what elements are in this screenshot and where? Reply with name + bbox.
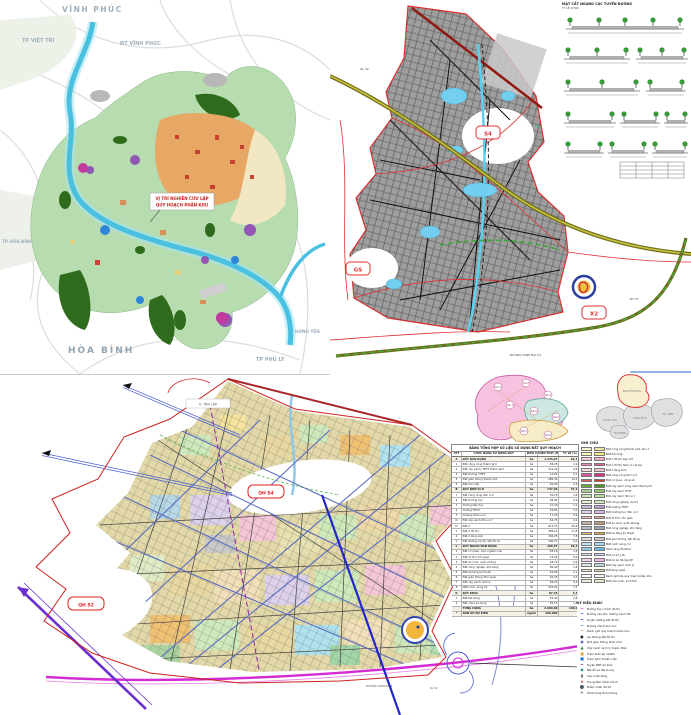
section-row-5c (652, 141, 688, 157)
legend-swatch-planned (594, 468, 605, 472)
table-header-cell: ĐƠN VỊ (526, 452, 537, 456)
inset-label: S2-3 (553, 415, 559, 419)
legend-swatch-planned (594, 521, 605, 525)
symbol-label: Cầu vượt sông (587, 674, 607, 678)
legend-label: Đất ở đô thị xây mới (606, 457, 633, 461)
section-row-5a (564, 141, 604, 157)
section-row-2b (636, 47, 688, 63)
legend-label: Đất công nghiệp, kho tàng (606, 526, 642, 530)
section-row-4a (564, 111, 616, 127)
section-row-3 (564, 79, 640, 95)
legend-swatch-planned (594, 532, 605, 536)
legend-title: GHI CHÚ (581, 441, 691, 445)
city-emblem (573, 276, 595, 298)
symbol-label: Đường cao tốc, đường vành đai (587, 612, 631, 616)
legend-swatch-planned (594, 510, 605, 514)
legend-swatch-existing (581, 526, 592, 530)
legend-label: Đất dự án đã lập QH (606, 558, 633, 562)
inset-label: S1-1 (495, 385, 501, 389)
legend-swatch-existing (581, 553, 592, 557)
legend-swatch-existing (581, 489, 592, 493)
legend-swatch-existing (581, 516, 592, 520)
inset-subdivision-canvas: S1-1 S1-2 S1-3 S2-1 S2-2 S2-3 S3-1 S3-2 (468, 371, 580, 445)
legend-label: Đất công cộng thành phố, khu ở (606, 447, 649, 451)
legend-items: Đất công cộng thành phố, khu ở Đất hỗn h… (581, 446, 691, 584)
symbol-icon: ━ (577, 618, 587, 622)
symbol-icon: ╌ (577, 629, 587, 633)
inset-label: S3-2 (545, 433, 551, 437)
legend-swatch-planned (594, 463, 605, 467)
table-header-cell: CHỨC NĂNG SỬ DỤNG ĐẤT (462, 452, 526, 456)
legend-swatch-planned (594, 489, 605, 493)
legend-swatch-existing (581, 569, 592, 573)
legend-swatch-planned (594, 563, 605, 567)
legend-swatch-planned (594, 452, 605, 456)
legend-label: Đất trường THPT (606, 505, 628, 509)
zone-label-gs: GS (354, 268, 363, 274)
legend-swatch-existing (581, 521, 592, 525)
symbol-label: Cây xanh cách ly tuyến điện (587, 646, 627, 650)
symbol-icon: ━ (577, 607, 587, 611)
legend-label: Mặt nước sông, hồ (606, 542, 631, 546)
road-label-b: ĐƯỜNG VÀNH ĐAI 3,5 (510, 352, 541, 357)
legend-swatch-existing (581, 558, 592, 562)
legend-swatch-existing (581, 542, 592, 546)
legend-swatch-planned (594, 505, 605, 509)
legend-swatch-planned (594, 516, 605, 520)
legend-swatch-planned (594, 542, 605, 546)
legend-label: Đất di tích, tôn giáo (606, 516, 633, 520)
legend-swatch-planned (594, 494, 605, 498)
section-row-5b (608, 141, 648, 157)
legend-swatch-existing (581, 463, 592, 467)
legend-swatch-existing (581, 547, 592, 551)
symbol-label: Trạm biến áp 110KV (587, 652, 615, 656)
symbol-label: Điểm nhấn đô thị (587, 685, 611, 689)
landuse-table: BẢNG TỔNG HỢP SỐ LIỆU SỬ DỤNG ĐẤT QUY HO… (451, 444, 579, 586)
symbol-icon: ▲ (577, 646, 587, 650)
table-row: *DÂN SỐ DỰ KIẾN người160.000 (452, 612, 578, 617)
label-vinh-phuc: VĨNH PHÚC (62, 5, 123, 14)
legend-swatch-planned (594, 447, 605, 451)
symbol-icon: ■ (577, 657, 587, 661)
symbol-label: Ranh giới quy hoạch phân khu (587, 629, 630, 633)
legend-label: Đất nông nghiệp, dự trữ (606, 500, 638, 504)
label-dt-vinh-phuc: ĐT VĨNH PHÚC (120, 40, 161, 47)
legend-swatch-existing (581, 494, 592, 498)
legend-label: Đất cây xanh công viên thành phố (606, 484, 652, 488)
legend-label: Đất cây xanh đơn vị ở (606, 494, 635, 498)
symbol-label: Ga đường sắt đô thị (587, 635, 615, 639)
symbol-label: Tuyến BRT dự kiến (587, 663, 613, 667)
table-header-cell: DIỆN TÍCH (HA) (538, 452, 559, 456)
sections-mini-table (620, 162, 684, 178)
inset-label: S1-2 (523, 381, 529, 385)
legend-label: Ranh giới lập quy hoạch phân khu (606, 574, 652, 578)
label-tp-hoa-binh: TP HÒA BÌNH (2, 239, 33, 244)
legend-swatch-planned (594, 569, 605, 573)
symbol-icon: ■ (577, 652, 587, 656)
cross-sections-drawings (562, 10, 690, 180)
legend-swatch-planned (594, 537, 605, 541)
legend-swatch-planned (594, 484, 605, 488)
symbol-icon: ━ (577, 624, 587, 628)
legend-label: Đất cơ sở y tế (606, 553, 625, 557)
landuse-legend: GHI CHÚ Đất công cộng thành phố, khu ở Đ… (581, 441, 691, 599)
cross-sections-panel: MẶT CẮT NGANG CÁC TUYẾN ĐƯỜNG TỶ LỆ 1/50… (562, 2, 690, 186)
legend-swatch-planned (594, 479, 605, 483)
table-body: AĐẤT DÂN DỤNG ha1.245,67 62,3 1Đất công … (452, 457, 578, 617)
legend-label: Đất hạ tầng kỹ thuật (606, 531, 634, 535)
legend-label: Đất công cộng đơn vị ở (606, 473, 637, 477)
zoning-road-label-b: QL 32 (430, 686, 438, 690)
section-row-4c (664, 111, 688, 127)
zone-label-qh-s4: QH S4 (258, 491, 274, 497)
area-box-label: X. TÂN LẬP (199, 402, 217, 407)
callout-line2: QUY HOẠCH PHÂN KHU (156, 203, 208, 208)
legend-label: Hành lang thoát lũ (606, 547, 631, 551)
symbol-icon: ★ (577, 680, 587, 684)
legend-swatch-existing (581, 484, 592, 488)
zoning-emblem (402, 617, 428, 643)
table-header-cell: STT (452, 452, 462, 456)
symbol-label: Trạm bơm thoát nước (587, 657, 617, 661)
inset-subdivision-map: S1-1 S1-2 S1-3 S2-1 S2-2 S2-3 S3-1 S3-2 (468, 371, 580, 445)
planning-maps-composite: VĨNH PHÚC ĐT VĨNH PHÚC TP VIỆT TRÌ TP HÒ… (0, 0, 691, 715)
legend-swatch-existing (581, 447, 592, 451)
table-title: BẢNG TỔNG HỢP SỐ LIỆU SỬ DỤNG ĐẤT QUY HO… (452, 445, 578, 452)
legend-label: Đất cây xanh cách ly (606, 563, 634, 567)
district-map: QL 32 ĐƯỜNG VÀNH ĐAI 3,5 ĐT 70 S4 GS X2 (330, 0, 691, 375)
symbols-title: KÝ HIỆU KHÁC (577, 601, 691, 605)
road-label-a: QL 32 (360, 67, 369, 71)
inset-location-canvas: QUỐC OAI HOÀI ĐỨC TỪ LIÊM ĐAN PHƯỢNG HÀ … (588, 371, 691, 445)
legend-label: Đất cây xanh TDTT (606, 489, 632, 493)
section-row-2a (564, 47, 630, 63)
inset-location-map: QUỐC OAI HOÀI ĐỨC TỪ LIÊM ĐAN PHƯỢNG HÀ … (588, 371, 691, 445)
symbol-item: ✈ Hành lang tĩnh không (577, 690, 691, 696)
regional-map: VĨNH PHÚC ĐT VĨNH PHÚC TP VIỆT TRÌ TP HÒ… (0, 0, 330, 375)
symbol-label: Bãi đỗ xe tập trung (587, 668, 614, 672)
legend-swatch-existing (581, 532, 592, 536)
inset-label: S1-3 (545, 393, 551, 397)
section-row-3b (646, 79, 686, 95)
legend-swatch-planned (594, 457, 605, 461)
symbol-label: Tuyến đường sắt đô thị (587, 618, 619, 622)
legend-swatch-existing (581, 473, 592, 477)
legend-swatch-existing (581, 579, 592, 583)
symbol-label: Đường trục chính đô thị (587, 607, 620, 611)
symbol-icon: ● (577, 635, 587, 639)
symbol-icon: ◉ (577, 640, 587, 644)
legend-swatch-planned (594, 473, 605, 477)
legend-label: Đất giao thông, bãi đỗ xe (606, 537, 640, 541)
legend-swatch-planned (594, 526, 605, 530)
legend-swatch-existing (581, 468, 592, 472)
section-row-4b (620, 111, 660, 127)
legend-swatch-planned (594, 553, 605, 557)
legend-swatch-existing (581, 574, 592, 578)
symbol-label: Nút giao thông khác mức (587, 640, 622, 644)
legend-swatch-planned (594, 579, 605, 583)
symbol-items: ━ Đường trục chính đô thị ━ Đường cao tố… (577, 606, 691, 696)
legend-label: Đất hỗn hợp (606, 452, 623, 456)
table-header-cell: TỶ LỆ (%) (559, 452, 578, 456)
symbol-icon: ▮ (577, 674, 587, 678)
symbol-label: Hành lang tĩnh không (587, 691, 617, 695)
zone-label-s4: S4 (484, 132, 492, 138)
legend-label: Đất an ninh, quốc phòng (606, 521, 639, 525)
label-hoa-binh: HÒA BÌNH (68, 344, 134, 356)
legend-swatch-existing (581, 537, 592, 541)
legend-swatch-existing (581, 500, 592, 504)
legend-swatch-existing (581, 563, 592, 567)
inset-label: S2-2 (531, 409, 537, 413)
legend-swatch-planned (594, 547, 605, 551)
legend-label: Đất cơ quan, công sở (606, 478, 635, 482)
legend-swatch-existing (581, 457, 592, 461)
legend-swatch-planned (594, 574, 605, 578)
symbol-icon: ◆ (577, 668, 587, 672)
zone-label-qh-s2: QH S2 (78, 603, 94, 609)
legend-swatch-existing (581, 505, 592, 509)
district-label: ĐAN PHƯỢNG (623, 389, 642, 393)
legend-label: Đất ở đô thị hiện có cải tạo (606, 463, 642, 467)
road-label-c: ĐT 70 (630, 297, 639, 301)
callout-line1: VỊ TRÍ NGHIÊN CỨU LẬP (155, 196, 208, 201)
section-row-1 (566, 17, 684, 33)
legend-label: Đất làng nghề (606, 568, 625, 572)
zone-label-x2: X2 (590, 312, 598, 318)
regional-map-canvas: VĨNH PHÚC ĐT VĨNH PHÚC TP VIỆT TRÌ TP HÒ… (0, 0, 330, 374)
symbol-icon: ✈ (577, 691, 587, 695)
legend-label: Đất trường học đơn vị ở (606, 510, 638, 514)
legend-label: Đất ở làng xóm (606, 468, 627, 472)
symbol-icon: ━ (577, 612, 587, 616)
symbol-icon: ━ (577, 663, 587, 667)
legend-label: Đất nhà vườn, sinh thái (606, 579, 637, 583)
inset-label: S2-1 (507, 403, 513, 407)
label-hung-yen: HƯNG YÊN (295, 329, 320, 334)
legend-swatch-existing (581, 479, 592, 483)
legend-swatch-planned (594, 500, 605, 504)
legend-item: Đất nhà vườn, sinh thái (581, 578, 691, 583)
legend-swatch-planned (594, 558, 605, 562)
symbol-legend: KÝ HIỆU KHÁC ━ Đường trục chính đô thị ━… (577, 601, 691, 713)
label-tp-viet-tri: TP VIỆT TRÌ (22, 36, 54, 44)
legend-swatch-existing (581, 510, 592, 514)
symbol-label: Đường chính khu vực (587, 624, 617, 628)
inset-label: S3-1 (521, 429, 527, 433)
symbol-label: Trung tâm hành chính (587, 680, 618, 684)
label-tp-phu-ly: TP PHỦ LÝ (256, 355, 285, 363)
symbol-icon: ⬤ (577, 685, 587, 689)
legend-swatch-existing (581, 452, 592, 456)
